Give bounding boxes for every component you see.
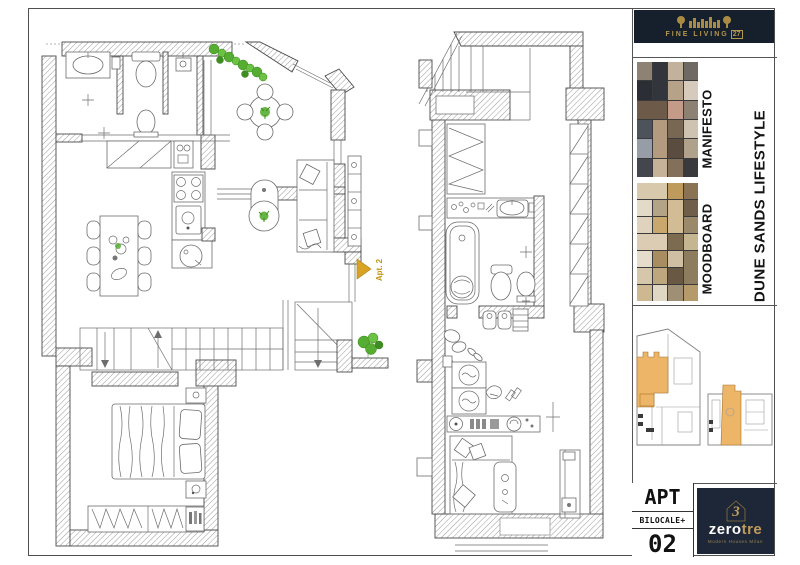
apartment-type-label: BILOCALE+ (632, 512, 693, 529)
manifesto-collage-image (637, 62, 698, 177)
lifestyle-label: DUNE SANDS LIFESTYLE (752, 110, 769, 302)
fine-living-logo: FINE LIVING 27 (634, 10, 774, 43)
moodboard-cell-divider (632, 305, 777, 306)
collage-tile (668, 268, 683, 284)
collage-tile (637, 217, 652, 233)
collage-tile (668, 285, 683, 301)
collage-tile (653, 217, 668, 233)
collage-tile (684, 62, 699, 80)
collage-tile (653, 159, 668, 177)
manifesto-label: MANIFESTO (700, 89, 715, 168)
collage-tile (684, 200, 699, 216)
collage-tile (668, 200, 683, 233)
collage-tile (637, 159, 652, 177)
collage-tile (653, 62, 668, 100)
trees-skyline-icon (673, 15, 735, 29)
collage-tile (637, 200, 652, 216)
collage-tile (668, 120, 683, 138)
collage-tile (653, 120, 668, 158)
collage-tile (684, 285, 699, 301)
collage-tile (668, 139, 683, 157)
apartment-number: 02 (632, 529, 693, 558)
collage-tile (653, 200, 668, 216)
collage-tile (637, 120, 652, 138)
collage-tile (668, 62, 683, 80)
collage-tile (684, 217, 699, 233)
zerotre-wordmark: zerotre (709, 523, 763, 537)
apartment-label: APT (632, 483, 693, 512)
panel-divider (632, 8, 633, 557)
zerotre-logo: 3 zerotre Modern Houses Milan (697, 488, 774, 554)
collage-tile (684, 139, 699, 157)
logo-cell-divider (632, 57, 777, 58)
collage-tile (668, 159, 683, 177)
collage-tile (637, 81, 652, 99)
collage-tile (668, 234, 683, 250)
svg-text:3: 3 (731, 504, 740, 520)
collage-tile (637, 183, 667, 199)
collage-tile (653, 268, 668, 284)
collage-tile (653, 285, 668, 301)
collage-tile (684, 120, 699, 138)
collage-tile (684, 234, 699, 250)
fine-living-brand-text: FINE LIVING (665, 31, 728, 38)
collage-tile (637, 62, 652, 80)
collage-tile (684, 101, 699, 119)
collage-tile (684, 81, 699, 99)
collage-tile (684, 183, 699, 199)
house-outline-icon: 3 (723, 499, 749, 523)
collage-tile (637, 285, 652, 301)
collage-tile (653, 251, 668, 267)
collage-tile (637, 101, 667, 119)
collage-tile (668, 101, 683, 119)
collage-tile (668, 251, 683, 267)
moodboard-label: MOODBOARD (700, 204, 715, 295)
collage-tile (668, 81, 683, 99)
collage-tile (637, 251, 652, 267)
collage-tile (668, 183, 683, 199)
fine-living-number: 27 (731, 30, 743, 39)
collage-tile (637, 234, 667, 250)
title-block: APT BILOCALE+ 02 (632, 483, 694, 557)
zerotre-tagline: Modern Houses Milan (708, 539, 763, 544)
collage-tile (637, 139, 652, 157)
collage-tile (684, 251, 699, 284)
drawing-sheet: Apt. 2 (0, 0, 800, 565)
moodboard-collage-image (637, 183, 698, 301)
collage-tile (637, 268, 652, 284)
